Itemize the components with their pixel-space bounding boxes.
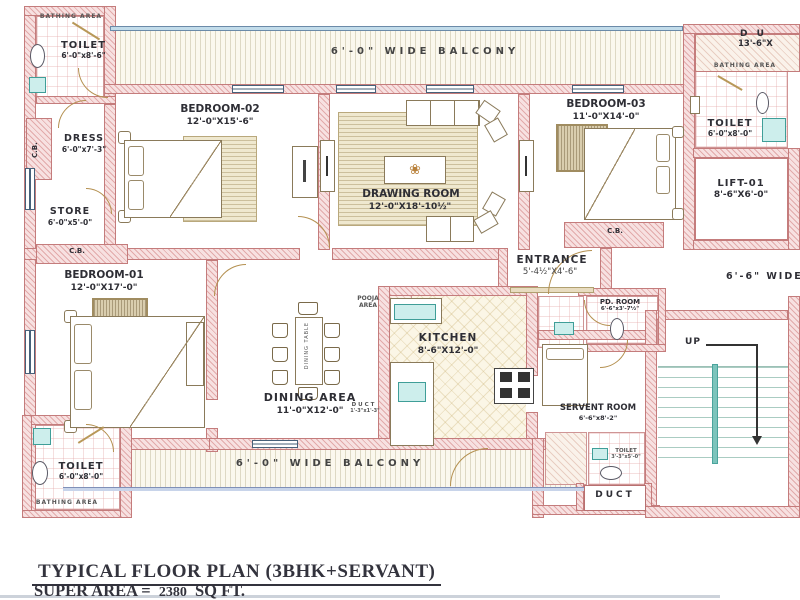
bedroom2-dims: 12'-0"X15'-6" (176, 117, 264, 127)
bedroom1-pillow-2 (74, 370, 92, 410)
bedroom3-name: BEDROOM-03 (556, 98, 656, 110)
bathing-area-label-tr: BATHING AREA (710, 63, 780, 70)
balcony-bottom-label: 6'-0" WIDE BALCONY (220, 458, 440, 470)
toilet-tr-sink (690, 96, 700, 114)
bedroom1-bed-fold (130, 317, 204, 427)
top-balcony-rail (110, 26, 683, 31)
kitchen-sink (398, 382, 426, 402)
balcony-top-label: 6'-0" WIDE BALCONY (290, 46, 560, 58)
bedroom3-pillow-1 (656, 134, 670, 162)
lobby-sink (554, 322, 574, 335)
drawing-room-name: DRAWING ROOM (350, 188, 472, 200)
wall-lift-top (693, 148, 800, 158)
kitchen-dims: 8'-6"X12'-0" (406, 346, 490, 356)
bedroom3-bedpost-top (672, 126, 684, 138)
toilet-tl-wc (30, 44, 45, 68)
window-bedroom3 (572, 85, 624, 93)
drawing-center-table: ❀ (384, 156, 446, 184)
toilet-tl-dims: 6'-0"x8'-6" (46, 52, 121, 61)
wall-kitchen-left (378, 286, 390, 448)
window-drawing-right (426, 85, 474, 93)
wall-bedroom1-bottom (130, 438, 210, 450)
servant-room-name: SERVENT ROOM (548, 404, 648, 414)
corridor-label: 6'-6" WIDE (726, 272, 800, 283)
stove-burner-2 (518, 372, 530, 382)
dining-area-dims: 11'-0"X12'-0" (264, 406, 356, 416)
duct-small-dims: 1'-3"x1'-3" (344, 409, 386, 415)
kitchen-counter-left (390, 362, 434, 446)
pd-room-wc (610, 318, 624, 340)
cb-label-bedroom3: C.B. (590, 227, 640, 235)
bedroom3-pillow-2 (656, 166, 670, 194)
dining-chair-l2 (272, 347, 288, 362)
wall-bedroom1-right (206, 260, 218, 400)
bedroom3-bed-fold (585, 129, 635, 219)
kitchen-name: KITCHEN (410, 332, 486, 344)
servant-pillow (546, 348, 584, 360)
pd-room-dims: 6'-6"x3'-7½" (588, 306, 652, 312)
toilet-tr-name: TOILET (700, 118, 760, 130)
toilet-tr-dims: 6'-0"x8'-0" (696, 130, 764, 139)
duct-bottom-label: DUCT (588, 490, 642, 500)
wall-stairs-bottom (645, 506, 800, 518)
wall-rightblock-left (683, 24, 695, 250)
stairs-arrow-hline (706, 344, 758, 346)
floor-plan: ❀ DINING TABLE (0, 0, 800, 600)
window-drawing-left (336, 85, 376, 93)
toilet-tr-wc (756, 92, 769, 114)
duct-tr-dims: 13'-6"X (738, 40, 800, 50)
bedroom2-wardrobe-handle (303, 160, 306, 182)
window-bedroom2 (232, 85, 284, 93)
pd-room-name: PD. ROOM (588, 298, 652, 306)
flower-icon: ❀ (409, 162, 421, 178)
entrance-name: ENTRANCE (510, 254, 594, 266)
store-name: STORE (42, 207, 98, 218)
dining-chair-r1 (324, 323, 340, 338)
store-dims: 6'-0"x5'-0" (38, 219, 102, 228)
wall-stairs-right (788, 296, 800, 518)
wall-pd-right (658, 288, 666, 352)
wall-kitchen-right (526, 286, 538, 376)
bathing-area-label-tl: BATHING AREA (36, 14, 106, 21)
bedroom1-pillow-1 (74, 324, 92, 364)
door-bedroom1 (214, 264, 246, 296)
bedroom2-pillow-1 (128, 146, 144, 176)
stairs-arrowhead-icon (752, 436, 762, 445)
cb-label-left: C.B. (31, 132, 39, 168)
super-area-label: SUPER AREA = (34, 581, 151, 600)
wall-lift-right (788, 148, 800, 250)
dining-table-label: DINING TABLE (305, 322, 311, 369)
wall-toiletbl-left (22, 415, 32, 518)
up-label: UP (680, 337, 706, 347)
wall-stairs-top (656, 310, 788, 320)
lift-dims: 8'-6"X6'-0" (700, 190, 782, 200)
servant-toilet-wc (600, 466, 622, 480)
lift-name: LIFT-01 (706, 178, 776, 190)
drawing-room-dims: 12'-0"X18'-10½" (360, 202, 460, 212)
door-dress (58, 100, 86, 128)
window-bedroom1-left (25, 330, 35, 374)
bedroom3-dims: 11'-0"X14'-0" (562, 112, 650, 122)
door-servant (600, 340, 628, 368)
bottom-balcony-rail (63, 487, 585, 491)
window-dining (252, 440, 298, 448)
bedroom2-pillow-2 (128, 180, 144, 210)
window-store-left (25, 168, 35, 210)
dress-dims: 6'-0"x7'-3" (52, 146, 116, 155)
bedroom1-name: BEDROOM-01 (54, 269, 154, 281)
wall-toiletbl-bottom (22, 510, 132, 518)
stairs-rail (712, 364, 718, 464)
super-area-unit: SQ FT. (195, 581, 245, 600)
stove-burner-1 (500, 372, 512, 382)
servant-toilet-dims: 3'-3"x5'-0" (604, 455, 648, 461)
wall-mid-right (332, 248, 502, 260)
toilet-bl-shower (33, 428, 51, 445)
stove-burner-4 (518, 388, 530, 398)
dining-chair-r3 (324, 370, 340, 385)
drawing-sofa-bottom (426, 216, 474, 242)
bathing-area-label-bl: BATHING AREA (32, 500, 102, 507)
servant-room-dims: 6'-6"x8'-2" (558, 415, 638, 422)
toilet-tl-shower (29, 77, 46, 93)
pooja-area-label: POOJA AREA (350, 296, 386, 310)
entrance-dims: 5'-4½"X4'-6" (508, 268, 592, 278)
stairs-treads (658, 366, 788, 463)
bedroom2-name: BEDROOM-02 (170, 103, 270, 115)
wall-toiletbl-right (120, 415, 132, 518)
super-area-value: 2380 (155, 585, 191, 600)
bedroom3-bedpost-bottom (672, 208, 684, 220)
dining-chair-l1 (272, 323, 288, 338)
top-balcony-deck (110, 30, 683, 86)
dining-chair-r2 (324, 347, 340, 362)
bedroom1-dims: 12'-0"X17'-0" (60, 283, 148, 293)
stove-burner-3 (500, 388, 512, 398)
dress-name: DRESS (56, 134, 112, 145)
drawing-sofa-top (406, 100, 480, 126)
dining-table: DINING TABLE (295, 317, 323, 385)
drawing-cabinet-right-handle (525, 156, 527, 176)
toilet-tr-shower (762, 118, 786, 142)
wall-lift-bottom (693, 240, 800, 250)
toilet-bl-name: TOILET (50, 461, 112, 473)
duct-tr-name: D U (740, 29, 800, 39)
toilet-tl-name: TOILET (46, 40, 121, 52)
toilet-bl-dims: 6'-0"x8'-0" (46, 473, 116, 482)
dining-chair-top (298, 302, 318, 315)
wall-dress-right (104, 104, 116, 254)
cb-label-store: C.B. (52, 247, 102, 255)
stairs-arrow-vline (756, 344, 758, 436)
super-area-line: SUPER AREA = 2380 SQ FT. (34, 581, 245, 600)
dining-chair-l3 (272, 370, 288, 385)
servant-bath-floor (545, 432, 587, 485)
drawing-cabinet-left-handle (326, 156, 328, 176)
kitchen-counter-slab (394, 304, 436, 320)
bedroom2-bed-fold (170, 141, 221, 217)
